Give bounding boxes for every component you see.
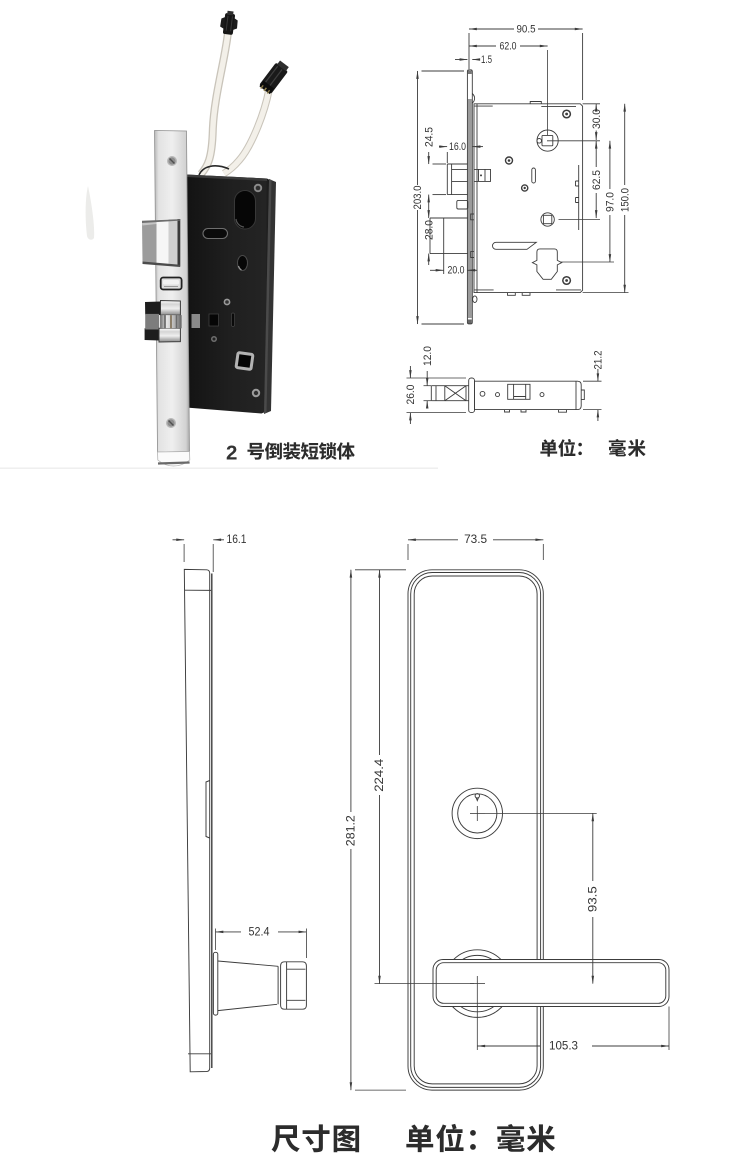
svg-text:52.4: 52.4 — [249, 924, 270, 938]
svg-text:21.2: 21.2 — [593, 351, 605, 370]
svg-text:12.0: 12.0 — [422, 346, 434, 366]
svg-text:16.1: 16.1 — [227, 532, 247, 546]
svg-text:97.0: 97.0 — [605, 192, 617, 212]
svg-text:73.5: 73.5 — [464, 532, 487, 546]
svg-text:62.5: 62.5 — [591, 170, 603, 190]
svg-text:93.5: 93.5 — [585, 886, 599, 912]
svg-text:24.5: 24.5 — [423, 127, 435, 147]
svg-text:16.0: 16.0 — [449, 141, 466, 153]
svg-text:105.3: 105.3 — [549, 1039, 578, 1053]
svg-text:62.0: 62.0 — [500, 40, 517, 52]
svg-text:90.5: 90.5 — [517, 23, 536, 35]
svg-text:281.2: 281.2 — [344, 815, 358, 846]
svg-text:224.4: 224.4 — [372, 758, 386, 791]
svg-text:2: 2 — [226, 442, 237, 465]
svg-text:203.0: 203.0 — [412, 186, 424, 210]
svg-text:30.0: 30.0 — [591, 109, 603, 129]
svg-text:1.5: 1.5 — [481, 54, 492, 66]
svg-text:28.0: 28.0 — [423, 220, 435, 240]
svg-text:150.0: 150.0 — [619, 188, 631, 212]
svg-text:20.0: 20.0 — [448, 265, 465, 277]
svg-text:26.0: 26.0 — [405, 385, 417, 405]
